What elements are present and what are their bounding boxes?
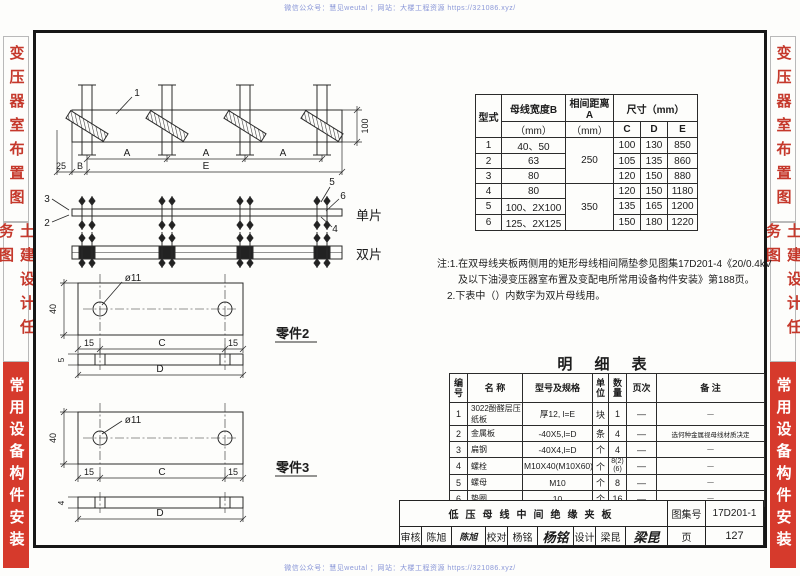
spec-header-type: 型式 [476, 95, 502, 138]
bom-cell: 金属板 [468, 426, 523, 442]
spec-cell: 80 [502, 184, 566, 199]
spec-cell: 5 [476, 199, 502, 215]
callout-3: 3 [44, 194, 50, 205]
spec-cell: 860 [668, 154, 698, 169]
bom-cell: — [657, 458, 765, 475]
callout-leaders [52, 187, 339, 227]
bom-cell: 选何种金属视母线材质决定 [657, 426, 765, 442]
sidebar-right-transformer-room-layout: 变压器室布置图 [770, 36, 796, 222]
spec-cell: 1 [476, 138, 502, 154]
atlas-no-value: 17D201-1 [706, 501, 764, 527]
dim-40: 40 [48, 433, 58, 443]
bom-title: 明 细 表 [449, 353, 764, 374]
spec-cell: 150 [641, 169, 668, 184]
spec-cell: 1220 [668, 215, 698, 231]
clamp-hatched-bars [66, 111, 343, 142]
callout-5: 5 [329, 177, 335, 188]
hole-dia-label: ø11 [125, 273, 142, 284]
spec-cell: 880 [668, 169, 698, 184]
bom-cell: M10X40(M10X60) [523, 458, 593, 475]
spec-cell: 1180 [668, 184, 698, 199]
table-row: 1 40、50 250 100 130 850 [476, 138, 698, 154]
spec-cell-gap-250: 250 [566, 138, 614, 184]
note-line: 2.下表中（）内数字为双片母线用。 [437, 289, 767, 305]
dim-a: A [124, 148, 131, 159]
part3-title: 零件3 [275, 460, 309, 475]
bom-cell: 5 [450, 475, 468, 491]
dim-b: B [77, 161, 83, 171]
bom-cell: -40X4,l=D [523, 442, 593, 458]
busbar-spec-table: 型式 母线宽度B 相间距离A 尺寸（mm） （mm） （mm） C D E 1 … [475, 94, 698, 231]
bom-cell: 个 [593, 475, 609, 491]
bom-cell: M10 [523, 475, 593, 491]
bom-cell: 8(2)(6) [609, 458, 627, 475]
sidebar-label: 土建设计任务图 [0, 223, 37, 361]
design-label: 设计 [574, 527, 596, 546]
sidebar-left-common-equipment-install: 常用设备构件安装 [3, 362, 29, 568]
bom-cell: 8 [609, 475, 627, 491]
callout-4: 4 [332, 224, 338, 235]
spec-cell: 150 [614, 215, 641, 231]
bom-cell: 4 [609, 426, 627, 442]
bom-cell: 螺母 [468, 475, 523, 491]
sidebar-label: 常用设备构件安装 [6, 377, 27, 553]
bom-cell: — [627, 403, 657, 426]
callout-1: 1 [134, 88, 140, 99]
bom-header: 备 注 [657, 374, 765, 403]
spec-header-width: 母线宽度B [502, 95, 566, 122]
bom-header: 名 称 [468, 374, 523, 403]
spec-cell: 120 [614, 169, 641, 184]
single-piece-label: 单片 [356, 208, 382, 223]
sidebar-left-civil-design-task: 土建设计任务图 [3, 222, 29, 362]
proof-label: 校对 [486, 527, 508, 546]
insulator-plate [72, 110, 342, 142]
part2-drawing: ø11 40 15 C 15 零件2 [48, 273, 317, 378]
bom-cell: 条 [593, 426, 609, 442]
dim-100: 100 [360, 118, 370, 133]
technical-drawing: 1 100 A A A 25 B E [36, 60, 438, 530]
part3-side-view [78, 497, 243, 508]
table-row: 5 螺母 M10 个 8 — — [450, 475, 765, 491]
dim-a: A [203, 148, 210, 159]
table-row: 编号 名 称 型号及规格 单位 数量 页次 备 注 [450, 374, 765, 403]
page-label: 页 [668, 527, 706, 546]
spec-cell: 1200 [668, 199, 698, 215]
callout-2: 2 [44, 218, 50, 229]
bom-cell: 厚12, l=E [523, 403, 593, 426]
spec-cell: 150 [641, 184, 668, 199]
spec-cell: 3 [476, 169, 502, 184]
spec-cell: 2 [476, 154, 502, 169]
dim-15: 15 [84, 467, 94, 477]
bom-header: 型号及规格 [523, 374, 593, 403]
bom-cell: -40X5,l=D [523, 426, 593, 442]
spec-cell-gap-350: 350 [566, 184, 614, 231]
table-row: 4 螺栓 M10X40(M10X60) 个 8(2)(6) — — [450, 458, 765, 475]
assembly-drawing: 1 100 A A A 25 B E [54, 85, 370, 175]
spec-header-gap: 相间距离A [566, 95, 614, 122]
dim-15: 15 [84, 338, 94, 348]
note-line: 注:1.在双母线夹板两侧用的矩形母线相间隔垫参见图集17D201-4《20/0.… [437, 257, 767, 273]
design-signature: 梁昆 [626, 527, 668, 546]
bom-cell: 4 [609, 442, 627, 458]
spec-cell: 850 [668, 138, 698, 154]
double-clamp-drawing: 双片 [72, 232, 382, 268]
table-row: 1 3022酚醛层压纸板 厚12, l=E 块 1 — — [450, 403, 765, 426]
dim-15: 15 [228, 467, 238, 477]
dim-c: C [158, 467, 165, 478]
spec-cell: 6 [476, 215, 502, 231]
bom-cell: 个 [593, 458, 609, 475]
dim-15: 15 [228, 338, 238, 348]
spec-header-width-unit: （mm） [502, 122, 566, 138]
dim-4: 4 [57, 500, 66, 505]
spec-cell: 120 [614, 184, 641, 199]
check-label: 审核 [400, 527, 422, 546]
design-name: 梁昆 [596, 527, 626, 546]
proof-signature: 杨铭 [538, 527, 574, 546]
sidebar-left-transformer-room-layout: 变压器室布置图 [3, 36, 29, 222]
bom-cell: 4 [450, 458, 468, 475]
bom-cell: 个 [593, 442, 609, 458]
dim-5: 5 [57, 357, 66, 362]
bom-cell: — [627, 458, 657, 475]
spec-header-gap-unit: （mm） [566, 122, 614, 138]
centerlines [83, 403, 238, 473]
spec-header-d: D [641, 122, 668, 138]
bolt-clusters [79, 232, 330, 268]
bom-table: 编号 名 称 型号及规格 单位 数量 页次 备 注 1 3022酚醛层压纸板 厚… [449, 373, 765, 507]
spec-cell: 100 [614, 138, 641, 154]
hole-dia-label: ø11 [125, 415, 142, 426]
dim-c: C [158, 338, 165, 349]
spec-cell: 135 [641, 154, 668, 169]
watermark-bottom: 微信公众号：慧见weutal ；网站：大楼工程资源 https://321086… [0, 563, 800, 573]
spec-cell: 135 [614, 199, 641, 215]
sidebar-label: 土建设计任务图 [762, 223, 800, 361]
table-row: 3 扁钢 -40X4,l=D 个 4 — — [450, 442, 765, 458]
spec-cell: 80 [502, 169, 566, 184]
centerlines [83, 274, 238, 344]
spec-header-c: C [614, 122, 641, 138]
table-row: 2 金属板 -40X5,l=D 条 4 — 选何种金属视母线材质决定 [450, 426, 765, 442]
bom-cell: — [657, 475, 765, 491]
bom-header: 编号 [450, 374, 468, 403]
spec-cell: 63 [502, 154, 566, 169]
spec-header-size: 尺寸（mm） [614, 95, 698, 122]
spec-cell: 180 [641, 215, 668, 231]
dim-40: 40 [48, 304, 58, 314]
check-signature: 陈旭 [452, 527, 486, 546]
spec-cell: 130 [641, 138, 668, 154]
bom-header: 数量 [609, 374, 627, 403]
sidebar-label: 变压器室布置图 [6, 45, 27, 213]
callout-6: 6 [340, 191, 346, 202]
sidebar-label: 常用设备构件安装 [773, 377, 794, 553]
bom-cell: — [657, 403, 765, 426]
page-number: 127 [706, 527, 764, 546]
bom-cell: 块 [593, 403, 609, 426]
check-name: 陈旭 [422, 527, 452, 546]
dim-a: A [280, 148, 287, 159]
bom-cell: 1 [609, 403, 627, 426]
bom-cell: 扁钢 [468, 442, 523, 458]
table-row: 4 80 350 120 150 1180 [476, 184, 698, 199]
dim-25: 25 [56, 161, 66, 171]
proof-name: 杨铭 [508, 527, 538, 546]
note-line: 及以下油浸变压器室布置及变配电所常用设备构件安装》第188页。 [437, 273, 767, 289]
spec-cell: 4 [476, 184, 502, 199]
sheet-title: 低压母线中间绝缘夹板 [400, 501, 668, 527]
spec-header-e: E [668, 122, 698, 138]
sidebar-label: 变压器室布置图 [773, 45, 794, 213]
busbar-posts [78, 85, 331, 155]
spec-cell: 105 [614, 154, 641, 169]
sidebar-right-civil-design-task: 土建设计任务图 [770, 222, 796, 362]
sidebar-right-common-equipment-install: 常用设备构件安装 [770, 362, 796, 568]
part3-drawing: ø11 40 15 C 15 零件3 [48, 403, 317, 522]
spec-cell: 40、50 [502, 138, 566, 154]
bom-cell: — [657, 442, 765, 458]
spec-cell: 125、2X125 [502, 215, 566, 231]
dim-d: D [156, 508, 163, 519]
bom-cell: 1 [450, 403, 468, 426]
bom-cell: 2 [450, 426, 468, 442]
bom-cell: — [627, 475, 657, 491]
notes: 注:1.在双母线夹板两侧用的矩形母线相间隔垫参见图集17D201-4《20/0.… [437, 257, 767, 305]
bom-header: 页次 [627, 374, 657, 403]
watermark-top: 微信公众号：慧见weutal ；网站：大楼工程资源 https://321086… [0, 3, 800, 13]
part2-title: 零件2 [275, 326, 309, 341]
double-piece-label: 双片 [356, 247, 382, 262]
bom-header: 单位 [593, 374, 609, 403]
spec-cell: 165 [641, 199, 668, 215]
bom-cell: 3 [450, 442, 468, 458]
bom-cell: — [627, 426, 657, 442]
bom-cell: 螺栓 [468, 458, 523, 475]
dim-e: E [203, 161, 210, 172]
atlas-no-label: 图集号 [668, 501, 706, 527]
title-block: 低压母线中间绝缘夹板 图集号 17D201-1 审核 陈旭 陈旭 校对 杨铭 杨… [399, 500, 764, 545]
bom-cell: — [627, 442, 657, 458]
bom-cell: 3022酚醛层压纸板 [468, 403, 523, 426]
dim-d: D [156, 364, 163, 375]
atlas-page: 微信公众号：慧见weutal ；网站：大楼工程资源 https://321086… [0, 0, 800, 576]
spec-cell: 100、2X100 [502, 199, 566, 215]
single-clamp-drawing: 3 2 5 6 4 单片 [44, 177, 382, 235]
bolt-clusters [79, 196, 330, 230]
